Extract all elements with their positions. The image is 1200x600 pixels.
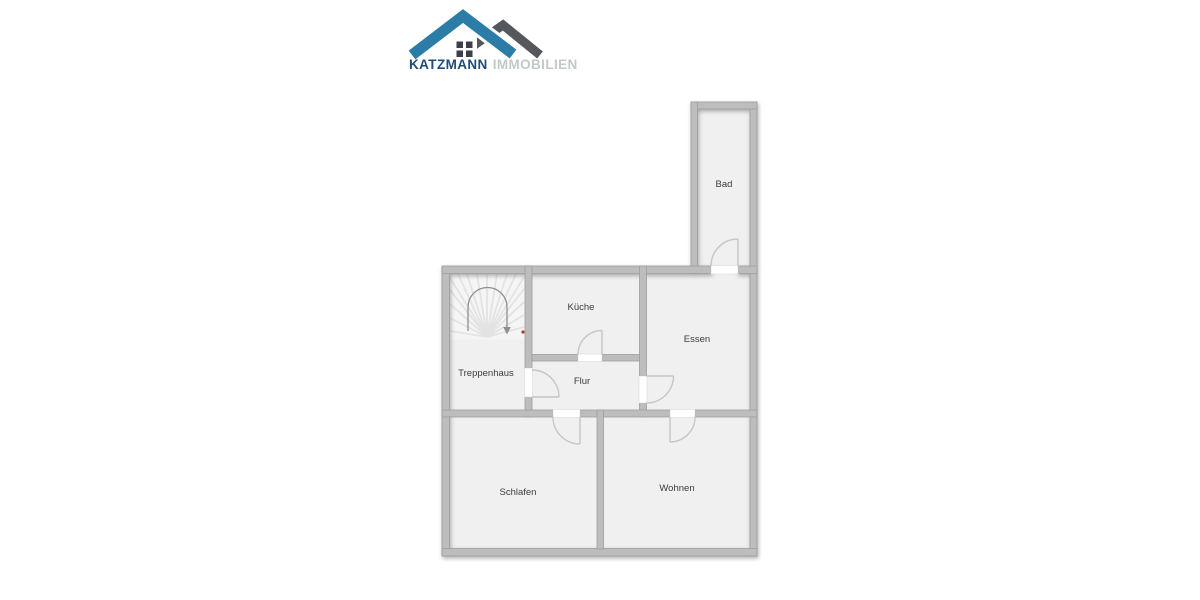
wall-top-right-segment: [738, 266, 757, 274]
wohnen-door-opening: [670, 410, 695, 418]
room-label-kueche: Küche: [568, 302, 595, 313]
room-label-essen: Essen: [684, 334, 710, 345]
room-label-flur: Flur: [574, 376, 590, 387]
wall-kueche-flur-left: [532, 355, 578, 362]
schlafen-door-opening: [553, 410, 580, 418]
room-label-wohnen: Wohnen: [659, 483, 694, 494]
room-label-treppenhaus: Treppenhaus: [458, 368, 514, 379]
wall-middle-right: [695, 410, 757, 417]
wall-bad-top: [691, 102, 757, 109]
essen-door-opening: [639, 376, 647, 403]
wall-kueche-flur-right: [602, 355, 640, 362]
wall-bad-left: [691, 102, 698, 274]
marker-dot: [521, 330, 524, 333]
wall-middle-left: [442, 410, 553, 417]
wall-bottom: [442, 549, 757, 557]
wall-schlafen-wohnen: [597, 410, 604, 549]
wall-right: [750, 102, 757, 556]
room-label-bad: Bad: [716, 179, 733, 190]
wall-middle-center: [580, 410, 670, 417]
treppenhaus-door-opening: [525, 368, 533, 397]
staircase: [450, 274, 526, 340]
page: KATZMANNIMMOBILIEN: [0, 0, 1200, 600]
kueche-door-opening: [578, 354, 602, 362]
bad-door-opening: [711, 266, 738, 275]
room-label-schlafen: Schlafen: [500, 487, 537, 498]
floorplan: Bad Küche Essen Treppenhaus Flur Schlafe…: [0, 0, 1200, 600]
wall-essen-upper: [640, 266, 647, 376]
wall-top-left-segment: [442, 266, 711, 274]
wall-treppenhaus-upper: [525, 266, 532, 368]
